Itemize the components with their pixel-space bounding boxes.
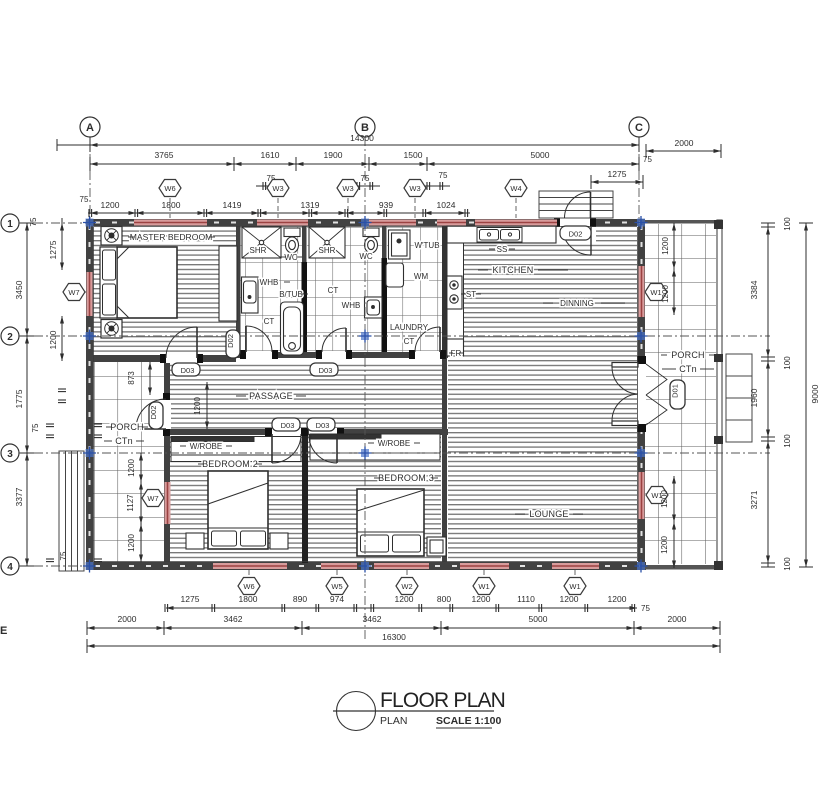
svg-text:W1: W1 [478, 582, 489, 591]
svg-text:75: 75 [29, 217, 38, 226]
svg-text:CT: CT [328, 286, 339, 295]
svg-text:W1: W1 [650, 288, 661, 297]
svg-text:16300: 16300 [382, 632, 406, 642]
svg-text:1500: 1500 [404, 150, 423, 160]
svg-text:CTn: CTn [679, 364, 697, 374]
svg-text:W6: W6 [243, 582, 254, 591]
svg-text:D03: D03 [181, 366, 195, 375]
svg-text:873: 873 [127, 371, 136, 385]
svg-text:CT: CT [264, 317, 275, 326]
svg-text:WC: WC [359, 252, 373, 261]
svg-text:1200: 1200 [48, 330, 58, 349]
svg-text:1200: 1200 [101, 200, 120, 210]
svg-text:2: 2 [7, 332, 13, 343]
svg-text:W6: W6 [164, 184, 175, 193]
svg-text:W1: W1 [569, 582, 580, 591]
svg-text:D03: D03 [319, 366, 333, 375]
svg-text:C: C [635, 122, 643, 134]
svg-text:1800: 1800 [239, 594, 258, 604]
svg-text:1900: 1900 [324, 150, 343, 160]
svg-text:1610: 1610 [261, 150, 280, 160]
svg-text:W/ROBE: W/ROBE [190, 442, 222, 451]
svg-text:D01: D01 [671, 384, 680, 398]
svg-text:W7: W7 [147, 494, 158, 503]
svg-text:2000: 2000 [668, 614, 687, 624]
svg-text:3462: 3462 [224, 614, 243, 624]
svg-text:2000: 2000 [118, 614, 137, 624]
svg-text:800: 800 [437, 594, 451, 604]
svg-text:1200: 1200 [193, 397, 202, 415]
svg-text:3450: 3450 [14, 280, 24, 299]
svg-text:1127: 1127 [126, 494, 135, 512]
svg-text:100: 100 [783, 557, 792, 571]
svg-text:KITCHEN: KITCHEN [493, 265, 534, 275]
svg-text:SHR: SHR [319, 246, 336, 255]
svg-text:14300: 14300 [350, 133, 374, 143]
svg-text:D02: D02 [569, 230, 583, 239]
svg-text:1275: 1275 [48, 240, 58, 259]
svg-text:A: A [86, 122, 94, 134]
svg-text:9000: 9000 [810, 384, 820, 403]
svg-text:75: 75 [31, 423, 40, 432]
svg-text:PASSAGE: PASSAGE [249, 391, 293, 401]
svg-text:SS: SS [497, 245, 508, 254]
svg-text:1200: 1200 [608, 594, 627, 604]
svg-text:D03: D03 [281, 421, 295, 430]
svg-text:974: 974 [330, 594, 344, 604]
svg-text:W5: W5 [331, 582, 342, 591]
svg-text:W3: W3 [272, 184, 283, 193]
svg-text:1110: 1110 [517, 594, 535, 604]
svg-text:1200: 1200 [395, 594, 414, 604]
svg-text:WC: WC [284, 253, 298, 262]
svg-text:FR: FR [451, 349, 462, 358]
svg-text:PORCH: PORCH [671, 350, 705, 360]
svg-text:WHB: WHB [342, 301, 361, 310]
svg-text:D02: D02 [226, 334, 235, 348]
svg-text:FLOOR PLAN: FLOOR PLAN [380, 689, 505, 712]
svg-text:4: 4 [7, 562, 13, 573]
svg-text:3384: 3384 [749, 280, 759, 299]
svg-text:5000: 5000 [531, 150, 550, 160]
svg-text:939: 939 [379, 200, 393, 210]
svg-text:5000: 5000 [529, 614, 548, 624]
svg-text:1200: 1200 [127, 534, 136, 552]
svg-text:100: 100 [783, 356, 792, 370]
svg-text:WHB: WHB [260, 278, 279, 287]
svg-text:1: 1 [7, 219, 13, 230]
svg-text:CTn: CTn [115, 436, 133, 446]
svg-text:3377: 3377 [14, 487, 24, 506]
svg-text:BEDROOM 2: BEDROOM 2 [202, 459, 258, 469]
svg-text:W'TUB: W'TUB [414, 241, 439, 250]
svg-text:WM: WM [414, 272, 429, 281]
svg-text:1200: 1200 [472, 594, 491, 604]
svg-text:1200: 1200 [127, 459, 136, 477]
svg-text:1200: 1200 [560, 594, 579, 604]
svg-text:75: 75 [59, 551, 68, 560]
svg-text:1200: 1200 [661, 237, 670, 255]
svg-text:1319: 1319 [301, 200, 320, 210]
svg-text:PLAN: PLAN [380, 715, 407, 727]
svg-text:1024: 1024 [437, 200, 456, 210]
svg-text:DINNING: DINNING [560, 299, 594, 308]
svg-text:BEDROOM 3: BEDROOM 3 [378, 473, 434, 483]
svg-text:W3: W3 [409, 184, 420, 193]
svg-text:1960: 1960 [749, 388, 759, 407]
svg-text:75: 75 [439, 171, 448, 180]
svg-text:1200: 1200 [661, 285, 670, 303]
svg-text:D03: D03 [316, 421, 330, 430]
svg-text:1200: 1200 [660, 536, 669, 554]
svg-text:1200: 1200 [660, 490, 669, 508]
svg-text:1419: 1419 [223, 200, 242, 210]
svg-text:2000: 2000 [675, 138, 694, 148]
svg-text:SCALE 1:100: SCALE 1:100 [436, 715, 502, 727]
svg-text:E: E [0, 625, 7, 637]
svg-text:3462: 3462 [363, 614, 382, 624]
svg-text:B/TUB: B/TUB [279, 290, 303, 299]
svg-text:W3: W3 [342, 184, 353, 193]
svg-text:LOUNGE: LOUNGE [529, 509, 568, 519]
svg-text:1275: 1275 [608, 169, 627, 179]
svg-text:75: 75 [643, 155, 652, 164]
svg-text:1800: 1800 [162, 200, 181, 210]
svg-text:3: 3 [7, 449, 13, 460]
svg-text:SHR: SHR [250, 246, 267, 255]
svg-text:3765: 3765 [155, 150, 174, 160]
svg-text:1275: 1275 [181, 594, 200, 604]
svg-text:3271: 3271 [749, 490, 759, 509]
svg-text:MASTER BEDROOM: MASTER BEDROOM [130, 232, 213, 242]
svg-text:75: 75 [80, 195, 89, 204]
svg-text:ST: ST [466, 290, 476, 299]
svg-text:CT: CT [404, 337, 415, 346]
svg-text:PORCH: PORCH [110, 422, 144, 432]
svg-text:1775: 1775 [14, 389, 24, 408]
svg-text:100: 100 [783, 434, 792, 448]
svg-text:W7: W7 [68, 288, 79, 297]
svg-text:W/ROBE: W/ROBE [378, 439, 410, 448]
svg-text:100: 100 [783, 217, 792, 231]
svg-text:75: 75 [361, 174, 370, 183]
svg-text:LAUNDRY: LAUNDRY [390, 323, 429, 332]
svg-text:75: 75 [641, 604, 650, 613]
svg-text:W2: W2 [401, 582, 412, 591]
svg-text:890: 890 [293, 594, 307, 604]
svg-text:W4: W4 [510, 184, 521, 193]
svg-text:D02: D02 [149, 406, 158, 420]
